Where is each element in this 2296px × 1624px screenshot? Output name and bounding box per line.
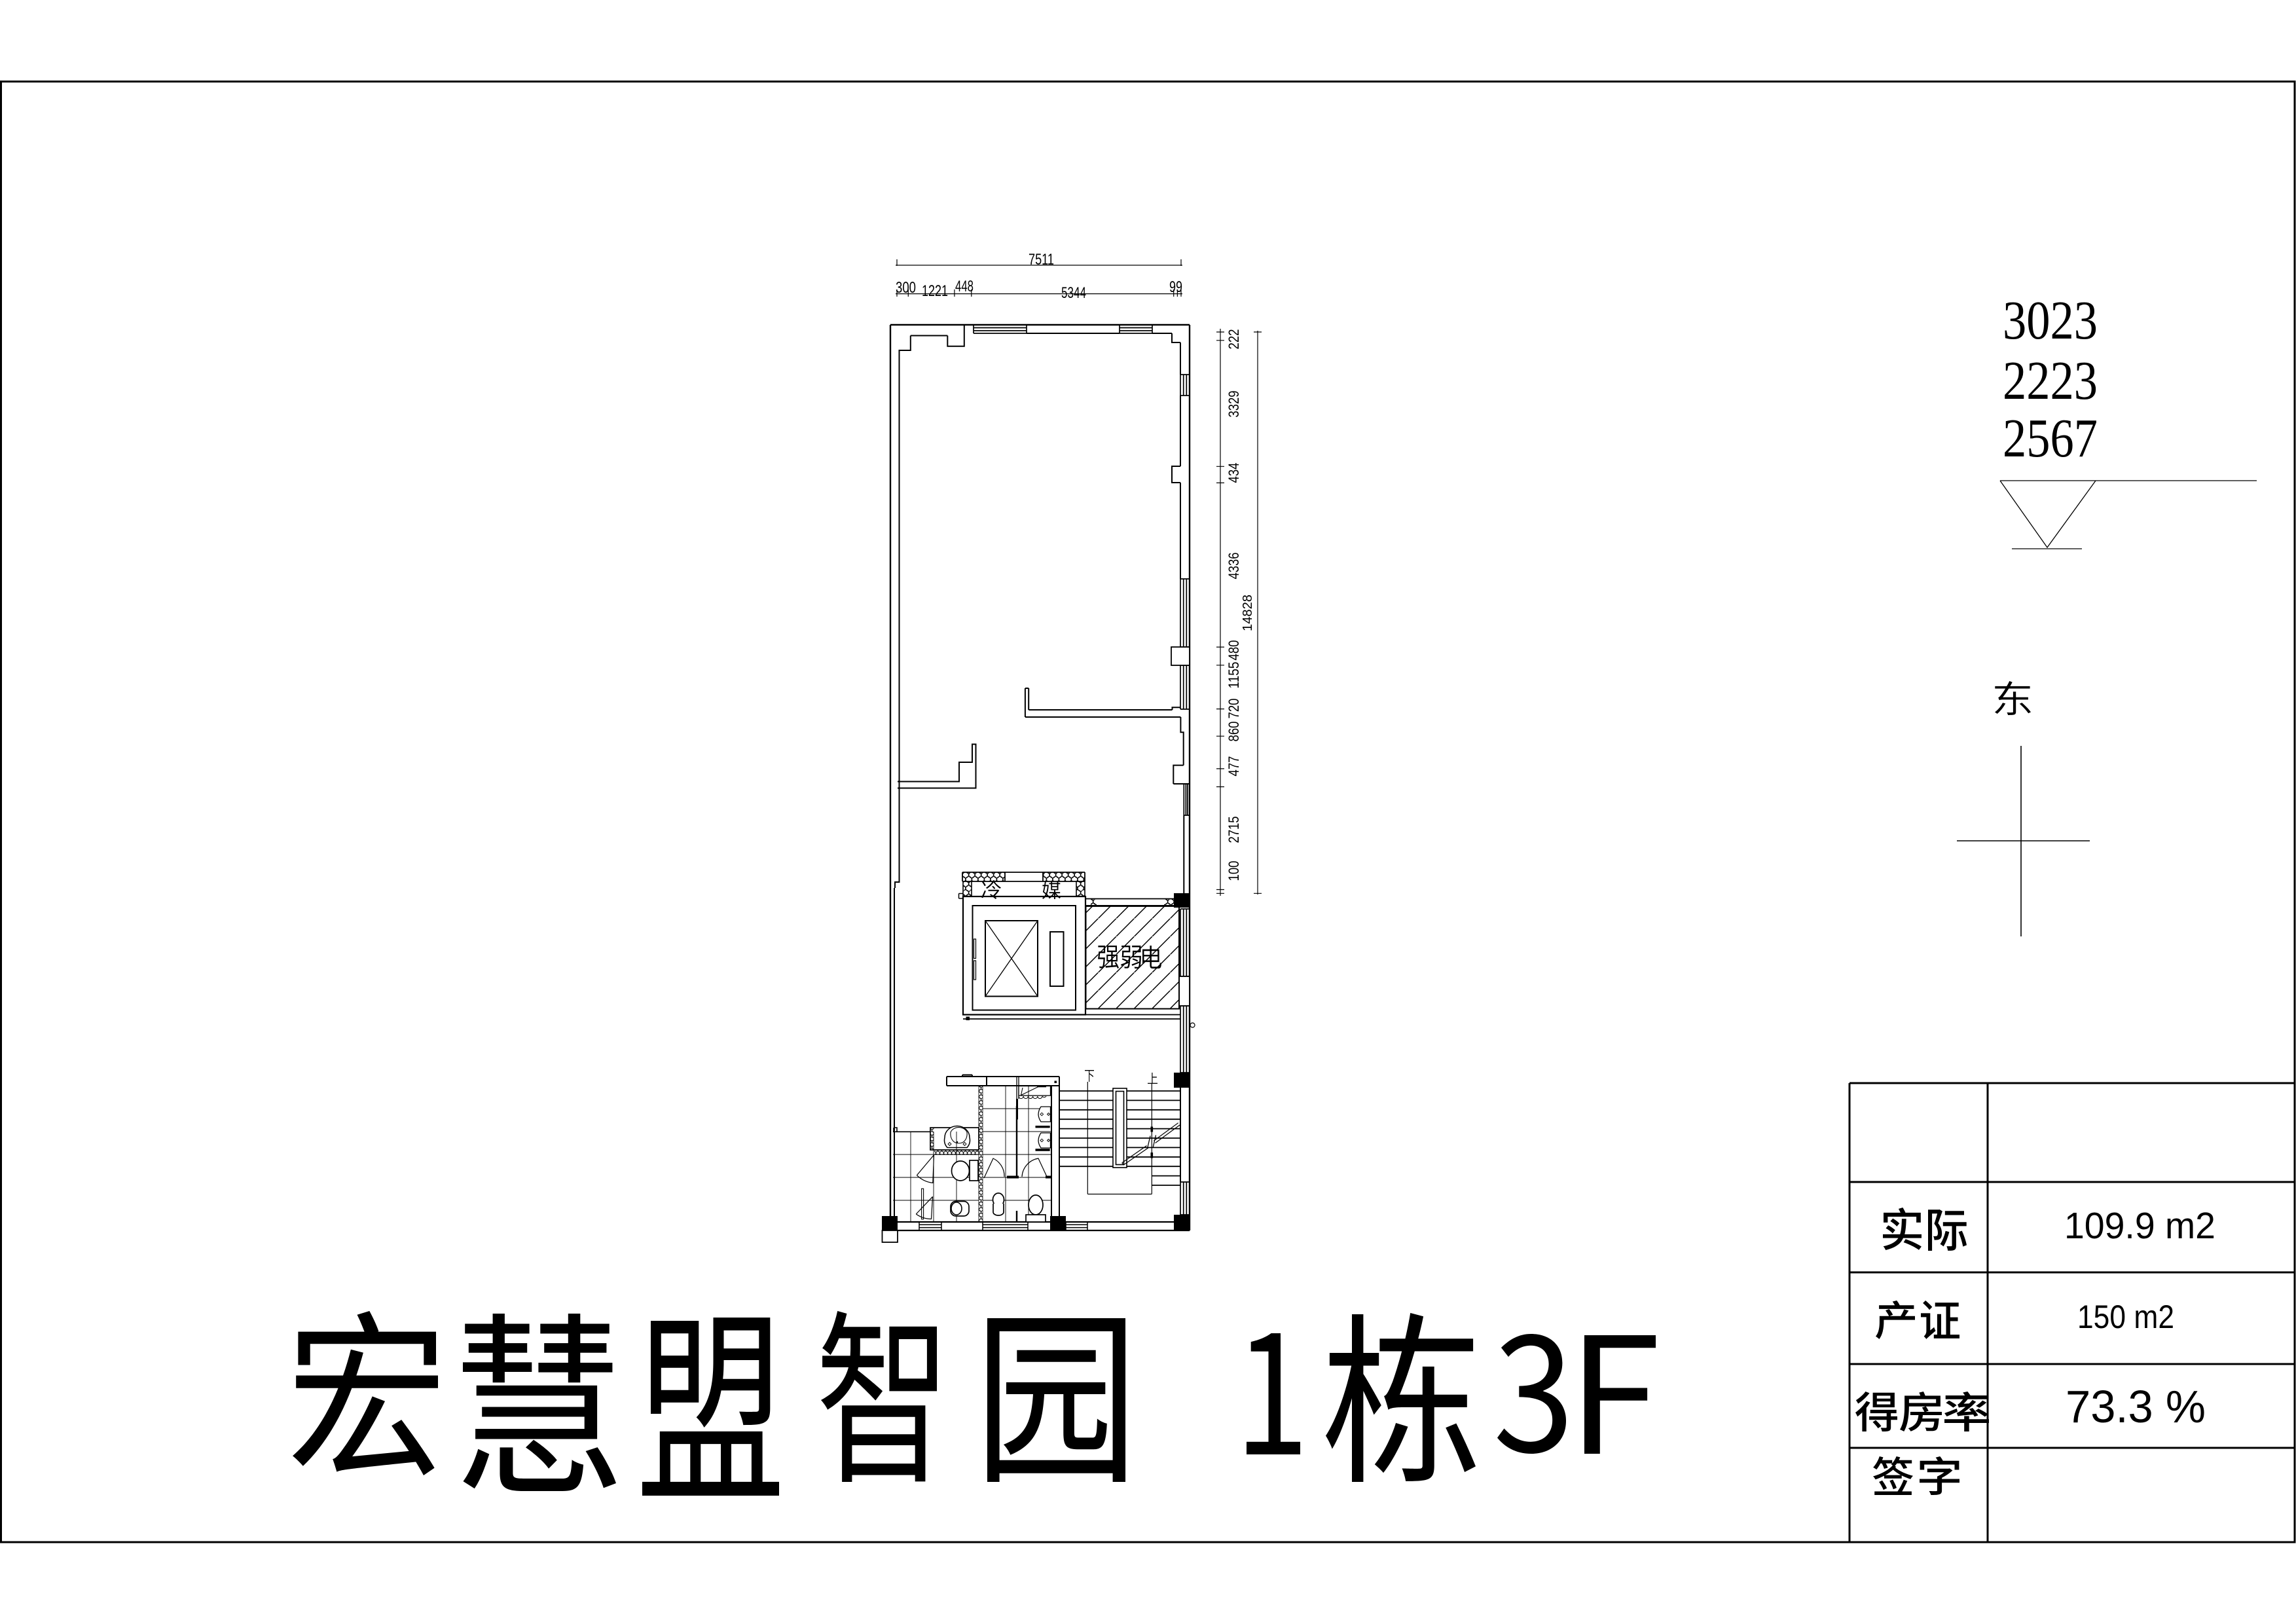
svg-text:477: 477 <box>1226 756 1242 777</box>
svg-text:2567: 2567 <box>2003 408 2098 469</box>
svg-text:4336: 4336 <box>1226 553 1242 580</box>
svg-text:300: 300 <box>896 279 916 297</box>
svg-text:109.9 m2: 109.9 m2 <box>2064 1205 2215 1247</box>
svg-text:2223: 2223 <box>2003 350 2098 411</box>
svg-text:100: 100 <box>1226 861 1242 881</box>
svg-text:7511: 7511 <box>1029 251 1054 268</box>
svg-text:150 m2: 150 m2 <box>2077 1299 2174 1335</box>
svg-text:3329: 3329 <box>1226 391 1242 418</box>
svg-text:99: 99 <box>1169 278 1182 296</box>
svg-text:860: 860 <box>1226 722 1242 742</box>
svg-text:1221: 1221 <box>922 282 948 300</box>
svg-text:434: 434 <box>1226 463 1242 483</box>
svg-text:5344: 5344 <box>1061 284 1086 302</box>
svg-text:3023: 3023 <box>2003 290 2098 351</box>
svg-text:14828: 14828 <box>1241 595 1255 631</box>
svg-text:448: 448 <box>955 278 974 295</box>
svg-text:720: 720 <box>1226 699 1242 719</box>
svg-text:222: 222 <box>1226 329 1242 350</box>
svg-text:1155: 1155 <box>1226 662 1242 689</box>
svg-text:480: 480 <box>1226 640 1242 661</box>
svg-text:2715: 2715 <box>1226 817 1242 843</box>
svg-text:73.3 %: 73.3 % <box>2066 1381 2206 1432</box>
